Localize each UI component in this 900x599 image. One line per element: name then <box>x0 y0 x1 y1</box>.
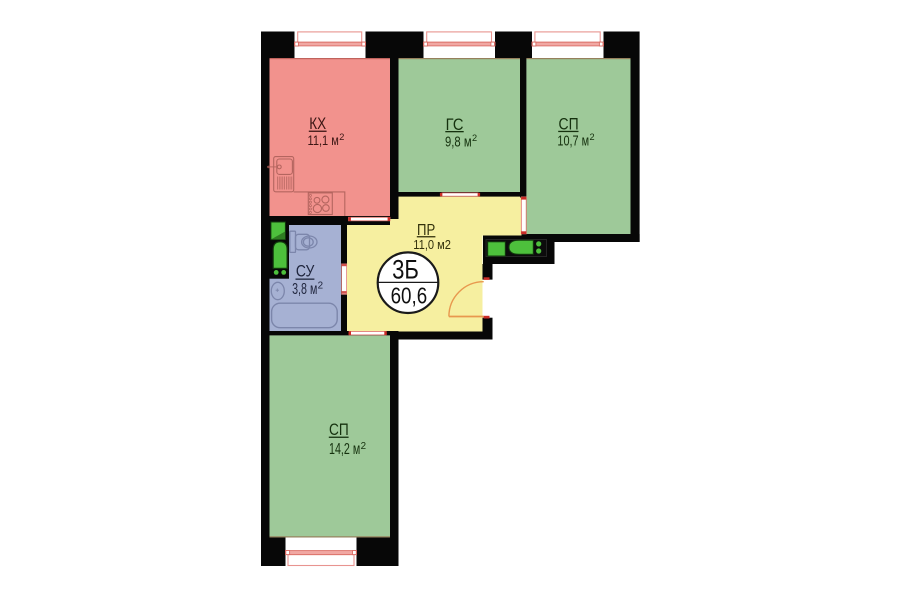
svg-text:11,1 м: 11,1 м <box>308 133 339 149</box>
svg-text:11,0 м2: 11,0 м2 <box>413 238 451 252</box>
svg-text:9,8 м: 9,8 м <box>445 134 472 150</box>
svg-text:КХ: КХ <box>309 115 326 133</box>
svg-text:СП: СП <box>329 421 349 439</box>
svg-text:2: 2 <box>339 132 344 142</box>
svg-text:3,8 м: 3,8 м <box>292 281 317 298</box>
svg-text:2: 2 <box>318 281 323 292</box>
svg-text:60,6: 60,6 <box>391 283 428 309</box>
svg-text:14,2 м: 14,2 м <box>329 441 360 458</box>
svg-text:2: 2 <box>472 133 477 143</box>
svg-text:10,7 м: 10,7 м <box>557 133 589 149</box>
svg-text:СУ: СУ <box>296 262 315 280</box>
svg-text:2: 2 <box>361 441 366 452</box>
svg-text:3Б: 3Б <box>392 254 419 284</box>
svg-text:2: 2 <box>590 132 595 142</box>
